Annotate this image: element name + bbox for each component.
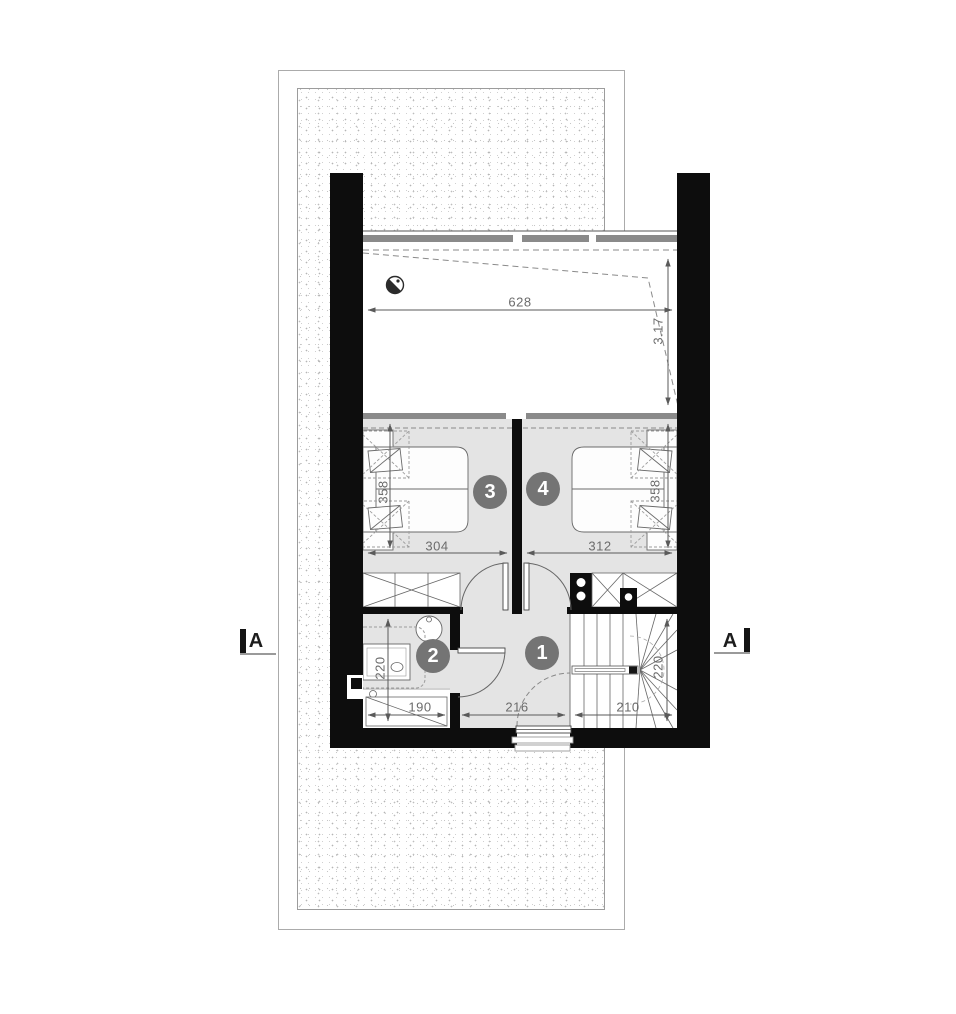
dimension-room4-width: 312 <box>588 540 611 553</box>
floor-plan-canvas: 628 3.17 358 304 312 358 220 190 216 210… <box>0 0 956 1014</box>
dimension-room4-depth: 358 <box>649 479 662 502</box>
section-letter-left: A <box>249 631 263 651</box>
dimension-room3-depth: 358 <box>377 480 390 503</box>
stair-handrail <box>572 666 638 674</box>
room-badge-4: 4 <box>526 472 560 506</box>
roof-drain-icon <box>387 277 404 294</box>
dimension-bathroom-depth: 220 <box>374 656 387 679</box>
bed-room4 <box>572 430 681 550</box>
dimension-stairs-width: 210 <box>616 701 639 714</box>
wardrobe-room3 <box>363 573 460 607</box>
dimension-bathroom-width: 190 <box>408 701 431 714</box>
room-badge-1: 1 <box>525 636 559 670</box>
room-badge-2: 2 <box>416 639 450 673</box>
room-badge-3: 3 <box>473 475 507 509</box>
flue-and-wardrobe-room4 <box>570 573 677 607</box>
dimension-terrace-height: 3.17 <box>652 317 665 344</box>
section-underline-right <box>714 652 750 654</box>
section-underline-left <box>240 653 276 655</box>
dimension-hall-width: 216 <box>505 701 528 714</box>
dimension-room3-width: 304 <box>425 540 448 553</box>
section-letter-right: A <box>723 631 737 651</box>
section-cut-bar-left <box>240 629 246 655</box>
floor-plan-drawing <box>0 0 956 1014</box>
dimension-stairs-depth: 220 <box>652 655 665 678</box>
dimension-terrace-width: 628 <box>508 296 531 309</box>
section-cut-bar-right <box>744 628 750 654</box>
